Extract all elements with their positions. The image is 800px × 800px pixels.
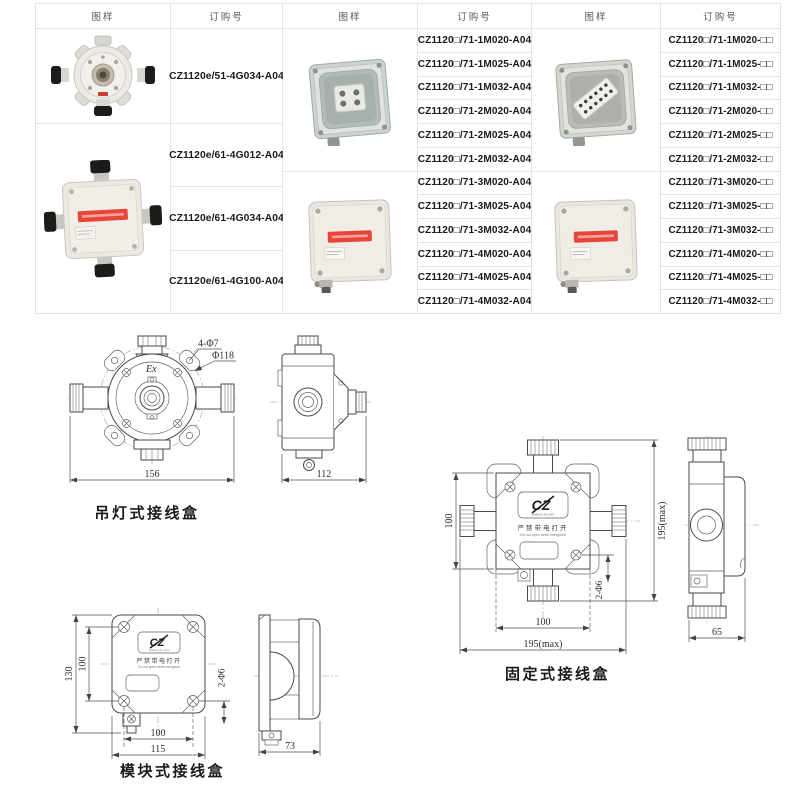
order-number-cell: CZ1120□/71-3M032-□□ [661,219,781,243]
closed-junction-box-red-label-photo [548,191,644,293]
module-junction-box-side-drawing: 73 [252,606,342,766]
order-number-cell: CZ1120□/71-4M020-□□ [661,243,781,267]
hole-spacing-h-dimension: 100 [151,728,166,739]
logo-url: www.cz-ex.com [149,648,170,652]
group3-order-column: 订购号 CZ1120□/71-1M020-□□ CZ1120□/71-1M025… [661,4,781,314]
order-number-cell: CZ1120□/71-4M032-□□ [661,290,781,314]
order-number-cell: CZ1120□/71-3M025-□□ [661,195,781,219]
group2-image-cell-top [283,29,418,172]
group2-image-cell-bottom [283,172,418,315]
holes-label: 4-Φ7 [198,339,219,350]
fixed-junction-box-side-drawing: 65 [683,434,763,649]
group3-image-cell-bottom [532,172,661,315]
group1-order-header: 订购号 [171,4,283,29]
order-number-cell: CZ1120□/71-1M032-□□ [661,77,781,101]
group3-image-column: 图样 [532,4,661,314]
order-number-cell: CZ1120□/71-4M020-A04 [418,243,532,267]
order-number-cell: CZ1120□/71-2M032-□□ [661,148,781,172]
fixed-junction-box-front-drawing: CZ www.cz-ex.com 严禁带电打开 Do not open whil… [440,434,675,664]
closed-junction-box-red-label-photo [302,191,398,293]
group2-image-column: 图样 [283,4,418,314]
order-number-cell: CZ1120□/71-2M025-□□ [661,124,781,148]
body-height-dimension: 100 [444,514,455,529]
group3-image-cell-top [532,29,661,172]
mount-holes-label: 2-Φ6 [217,668,227,687]
logo-url: www.cz-ex.com [532,513,554,517]
depth-dimension: 112 [317,469,332,480]
overall-height-dimension: 195(max) [657,502,668,541]
four-way-pendant-junction-box-photo [44,160,162,278]
order-number-cell: CZ1120□/71-1M032-A04 [418,77,532,101]
pendant-caption: 吊灯式接线盒 [57,502,237,523]
order-number-cell: CZ1120□/71-4M032-A04 [418,290,532,314]
warning-en: Do not open while energized [520,533,566,537]
warning-cn: 严禁带电打开 [518,523,569,532]
ex-mark-red-label [98,92,108,96]
catalog-table: 图样 [35,3,781,314]
diameter-label: Φ118 [212,351,234,362]
order-number-cell: CZ1120□/71-1M025-□□ [661,53,781,77]
order-number-cell: CZ1120□/71-2M025-A04 [418,124,532,148]
warning-cn: 严禁带电打开 [136,657,181,665]
module-caption: 模块式接线盒 [75,760,270,781]
order-number-cell: CZ1120□/71-2M020-A04 [418,100,532,124]
open-junction-box-terminal-strip-photo [548,54,644,146]
group3-image-header: 图样 [532,4,661,29]
order-number-cell: CZ1120□/71-2M032-A04 [418,148,532,172]
order-number-cell: CZ1120e/61-4G034-A04 [171,187,283,250]
group1-image-cell-top [36,29,171,124]
order-number-cell: CZ1120□/71-3M032-A04 [418,219,532,243]
group2-image-header: 图样 [283,4,418,29]
order-number-cell: CZ1120□/71-1M020-□□ [661,29,781,53]
open-junction-box-photo [302,54,398,146]
overall-height-dimension: 130 [64,667,75,682]
order-number-cell: CZ1120e/61-4G100-A04 [171,251,283,314]
mount-holes-label: 2-Φ6 [594,580,604,599]
width-dimension: 156 [145,469,160,480]
group3-order-header: 订购号 [661,4,781,29]
round-pendant-junction-box-photo [51,35,155,117]
body-width-dimension: 115 [151,744,166,755]
hole-spacing-v-dimension: 100 [78,657,89,672]
group1-image-cell-bottom [36,124,171,314]
order-number-cell: CZ1120e/51-4G034-A04 [171,29,283,124]
catalog-page: 图样 [0,0,800,800]
overall-width-dimension: 195(max) [524,639,563,650]
order-number-cell: CZ1120□/71-4M025-□□ [661,267,781,291]
warning-en: Do not open while energized [138,665,180,669]
group1-image-header: 图样 [36,4,171,29]
order-number-cell: CZ1120□/71-3M025-A04 [418,195,532,219]
group1-order-column: 订购号 CZ1120e/51-4G034-A04 CZ1120e/61-4G01… [171,4,283,314]
body-width-dimension: 100 [536,617,551,628]
order-number-cell: CZ1120e/61-4G012-A04 [171,124,283,187]
order-number-cell: CZ1120□/71-2M020-□□ [661,100,781,124]
fixed-caption: 固定式接线盒 [440,663,675,684]
pendant-junction-box-front-drawing: Ex 4-Φ7 Φ118 156 [62,334,242,486]
order-number-cell: CZ1120□/71-3M020-A04 [418,172,532,196]
order-number-cell: CZ1120□/71-3M020-□□ [661,172,781,196]
group1-image-column: 图样 [36,4,171,314]
ex-marking: Ex [145,364,157,375]
order-number-cell: CZ1120□/71-4M025-A04 [418,267,532,291]
group2-order-header: 订购号 [418,4,532,29]
group2-order-column: 订购号 CZ1120□/71-1M020-A04 CZ1120□/71-1M02… [418,4,532,314]
depth-dimension: 65 [712,627,722,638]
depth-dimension: 73 [285,741,295,752]
order-number-cell: CZ1120□/71-1M020-A04 [418,29,532,53]
pendant-junction-box-side-drawing: 112 [268,334,373,486]
order-number-cell: CZ1120□/71-1M025-A04 [418,53,532,77]
